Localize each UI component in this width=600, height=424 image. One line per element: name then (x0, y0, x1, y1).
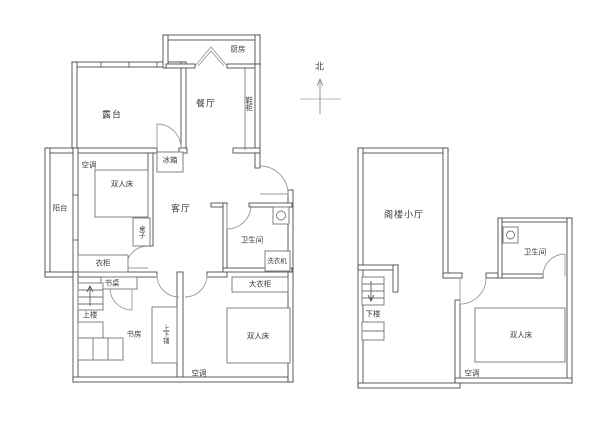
label-double-bed1: 双人床 (111, 180, 134, 188)
label-bunk-bed: 上下铺 (162, 324, 169, 344)
label-ac-bedroom2: 空调 (192, 369, 207, 377)
room-label-living: 客厅 (171, 206, 191, 215)
label-shoe-cabinet: 鞋柜 (245, 97, 253, 112)
room-label-kitchen: 厨房 (231, 45, 246, 53)
label-desk: 书桌 (105, 279, 120, 287)
label-big-wardrobe: 大衣柜 (249, 280, 272, 288)
floorplan-drawing (0, 0, 600, 424)
floor2-doors (460, 254, 565, 304)
label-table: 桌子 (138, 226, 145, 239)
room-label-dining: 餐厅 (196, 101, 216, 110)
label-washing-machine: 洗衣机 (267, 258, 287, 265)
label-downstairs: 下楼 (366, 310, 381, 318)
label-ac-attic: 空调 (465, 369, 480, 377)
north-arrow (300, 79, 341, 114)
label-fridge: 冰箱 (163, 156, 178, 164)
room-label-terrace: 露台 (102, 112, 122, 121)
room-label-bathroom2: 卫生间 (524, 248, 547, 256)
label-double-bed3: 双人床 (510, 331, 533, 339)
label-upstairs: 上楼 (83, 311, 98, 319)
label-double-bed2: 双人床 (247, 332, 270, 340)
label-wardrobe: 衣柜 (96, 259, 111, 267)
north-label: 北 (315, 64, 325, 73)
room-label-attic-hall: 阁楼小厅 (384, 212, 424, 221)
room-label-study: 书房 (127, 330, 142, 338)
room-label-balcony: 阳台 (53, 204, 68, 212)
label-ac-bedroom1: 空调 (82, 161, 97, 169)
room-label-bathroom1: 卫生间 (241, 236, 264, 244)
floor-plan-canvas: 露台 厨房 餐厅 鞋柜 冰箱 空调 双人床 阳台 桌子 客厅 卫生间 洗衣机 衣… (0, 0, 600, 424)
